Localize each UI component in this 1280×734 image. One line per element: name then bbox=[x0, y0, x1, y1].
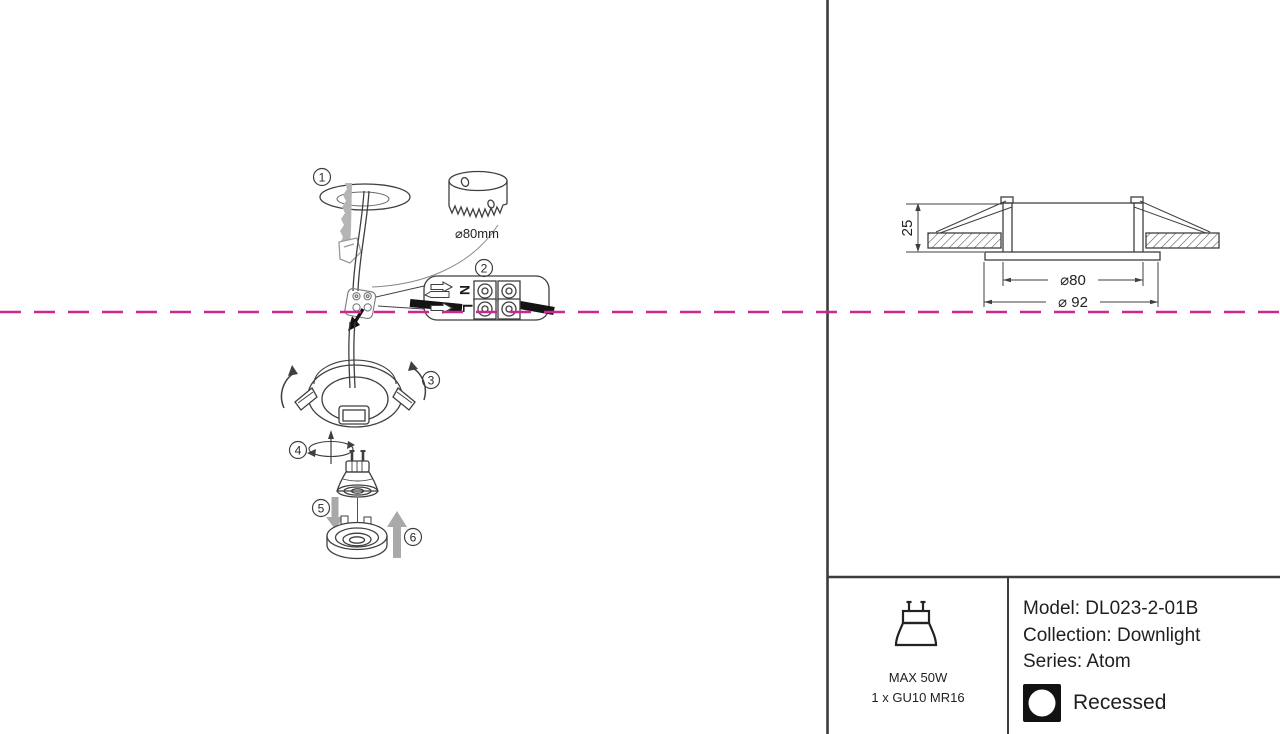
model-label: Model: DL023-2-01B bbox=[1023, 598, 1198, 620]
housing-cable-drawing bbox=[349, 322, 355, 388]
recessed-mount-icon bbox=[1022, 683, 1062, 723]
max-wattage-label: MAX 50W bbox=[830, 670, 1006, 685]
outer-diameter-label: ⌀ 92 bbox=[1058, 294, 1088, 311]
step-1-number: 1 bbox=[319, 171, 326, 185]
ceiling-section-right bbox=[1146, 233, 1219, 248]
technical-drawing-canvas: ⌀80mm bbox=[0, 0, 1280, 734]
step-6-number: 6 bbox=[410, 531, 417, 545]
gu10-bulb-drawing bbox=[337, 450, 378, 522]
push-up-arrow bbox=[387, 511, 407, 558]
rotation-axis-icon bbox=[307, 430, 355, 464]
hole-diameter-label: ⌀80mm bbox=[455, 226, 499, 241]
ceiling-hole-drawing bbox=[320, 184, 410, 210]
step-5-number: 5 bbox=[318, 502, 325, 516]
cutout-diameter-dimension: ⌀80 bbox=[1003, 262, 1143, 289]
ceiling-section-left bbox=[928, 233, 1001, 248]
step-3-number: 3 bbox=[428, 374, 435, 388]
trim-flange-section bbox=[985, 252, 1160, 260]
step-4-number: 4 bbox=[295, 444, 302, 458]
spec-sheet-page: ⌀80mm bbox=[0, 0, 1280, 734]
gu10-lamp-icon bbox=[890, 598, 942, 660]
height-dimension-label: 25 bbox=[899, 220, 916, 237]
terminal-block-drawing: N L bbox=[410, 276, 554, 320]
wire-ferrule bbox=[425, 292, 449, 298]
terminal-neutral-label: N bbox=[457, 285, 473, 295]
series-label: Series: Atom bbox=[1023, 651, 1131, 673]
collection-label: Collection: Downlight bbox=[1023, 625, 1200, 647]
leader-line-top bbox=[376, 286, 424, 297]
downlight-housing-drawing bbox=[295, 360, 415, 427]
installation-diagram: ⌀80mm bbox=[281, 169, 554, 559]
mounting-type-label: Recessed bbox=[1073, 691, 1166, 715]
step-2-number: 2 bbox=[481, 262, 488, 276]
dimension-drawing: 25 ⌀80 ⌀ 92 bbox=[899, 197, 1219, 311]
fixture-cross-section bbox=[928, 197, 1219, 260]
lamp-type-label: 1 x GU10 MR16 bbox=[830, 690, 1006, 705]
cutout-diameter-label: ⌀80 bbox=[1060, 272, 1086, 289]
